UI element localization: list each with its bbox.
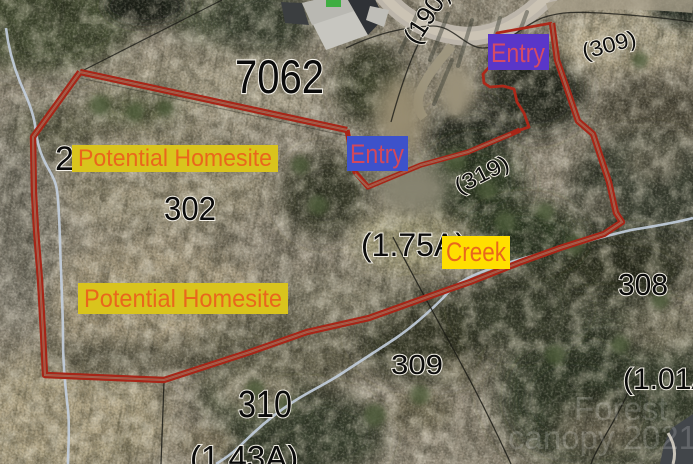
svg-text:Entry: Entry [350, 139, 404, 169]
svg-text:canopy 2021: canopy 2021 [508, 419, 693, 456]
svg-text:Creek: Creek [446, 237, 506, 267]
svg-text:308: 308 [618, 267, 668, 302]
svg-text:Potential Homesite: Potential Homesite [78, 145, 272, 172]
svg-text:Potential Homesite: Potential Homesite [84, 285, 282, 313]
svg-text:302: 302 [164, 190, 216, 227]
svg-text:Entry: Entry [491, 38, 545, 68]
svg-text:7062: 7062 [235, 50, 324, 103]
svg-text:309: 309 [391, 349, 443, 380]
svg-text:(1.43A): (1.43A) [190, 439, 298, 464]
svg-text:310: 310 [238, 384, 292, 426]
svg-text:2: 2 [55, 140, 74, 178]
